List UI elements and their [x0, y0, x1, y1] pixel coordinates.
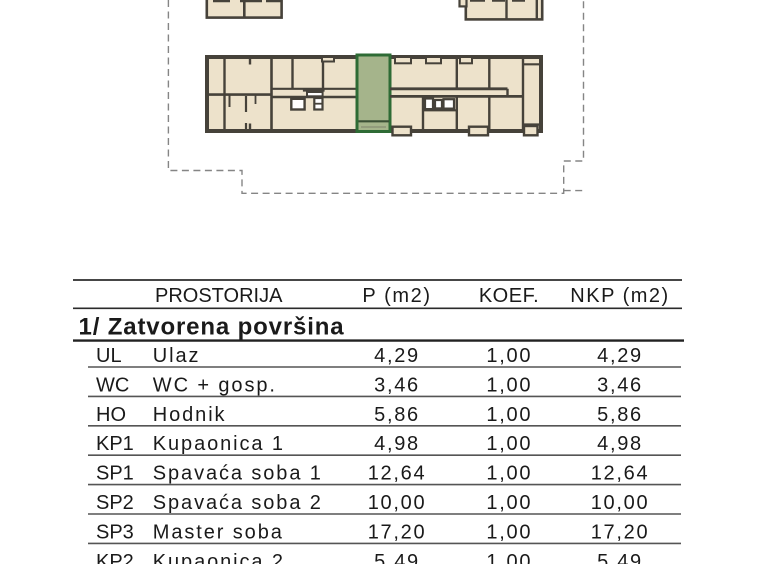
svg-text:PROSTORIJA: PROSTORIJA [155, 285, 283, 307]
svg-text:HO: HO [96, 404, 126, 426]
svg-text:Spavaća soba 2: Spavaća soba 2 [153, 492, 323, 514]
svg-text:3,46: 3,46 [374, 374, 420, 396]
svg-text:1,00: 1,00 [486, 345, 532, 367]
svg-text:4,29: 4,29 [597, 345, 643, 367]
svg-text:KP1: KP1 [96, 433, 134, 455]
svg-text:Kupaonica 1: Kupaonica 1 [153, 433, 285, 455]
svg-text:Ulaz: Ulaz [153, 345, 201, 367]
svg-text:Hodnik: Hodnik [153, 404, 227, 426]
svg-text:1,00: 1,00 [486, 492, 532, 514]
svg-text:KOEF.: KOEF. [479, 285, 539, 307]
svg-text:1,00: 1,00 [486, 433, 532, 455]
svg-text:1,00: 1,00 [486, 551, 532, 564]
svg-text:12,64: 12,64 [368, 463, 427, 485]
svg-text:SP3: SP3 [96, 522, 134, 544]
svg-text:4,29: 4,29 [374, 345, 420, 367]
svg-text:UL: UL [96, 345, 122, 367]
svg-text:Kupaonica 2: Kupaonica 2 [153, 551, 285, 564]
svg-text:4,98: 4,98 [597, 433, 643, 455]
svg-text:1/ Zatvorena površina: 1/ Zatvorena površina [79, 313, 345, 340]
svg-text:SP1: SP1 [96, 463, 134, 485]
svg-text:Master soba: Master soba [153, 522, 284, 544]
svg-text:1,00: 1,00 [486, 463, 532, 485]
svg-text:Spavaća soba 1: Spavaća soba 1 [153, 463, 323, 485]
svg-text:1,00: 1,00 [486, 522, 532, 544]
svg-text:12,64: 12,64 [591, 463, 650, 485]
svg-text:1,00: 1,00 [486, 404, 532, 426]
svg-text:5,49: 5,49 [597, 551, 643, 564]
svg-text:17,20: 17,20 [591, 522, 650, 544]
svg-text:3,46: 3,46 [597, 374, 643, 396]
svg-text:WC + gosp.: WC + gosp. [153, 374, 277, 396]
svg-text:SP2: SP2 [96, 492, 134, 514]
svg-text:17,20: 17,20 [368, 522, 427, 544]
svg-text:KP2: KP2 [96, 551, 134, 564]
svg-text:5,86: 5,86 [597, 404, 643, 426]
svg-text:P (m2): P (m2) [362, 285, 431, 307]
svg-text:WC: WC [96, 374, 129, 396]
svg-text:5,49: 5,49 [374, 551, 420, 564]
svg-text:10,00: 10,00 [368, 492, 427, 514]
svg-text:10,00: 10,00 [591, 492, 650, 514]
svg-text:5,86: 5,86 [374, 404, 420, 426]
svg-text:NKP (m2): NKP (m2) [570, 285, 669, 307]
svg-text:1,00: 1,00 [486, 374, 532, 396]
svg-text:4,98: 4,98 [374, 433, 420, 455]
